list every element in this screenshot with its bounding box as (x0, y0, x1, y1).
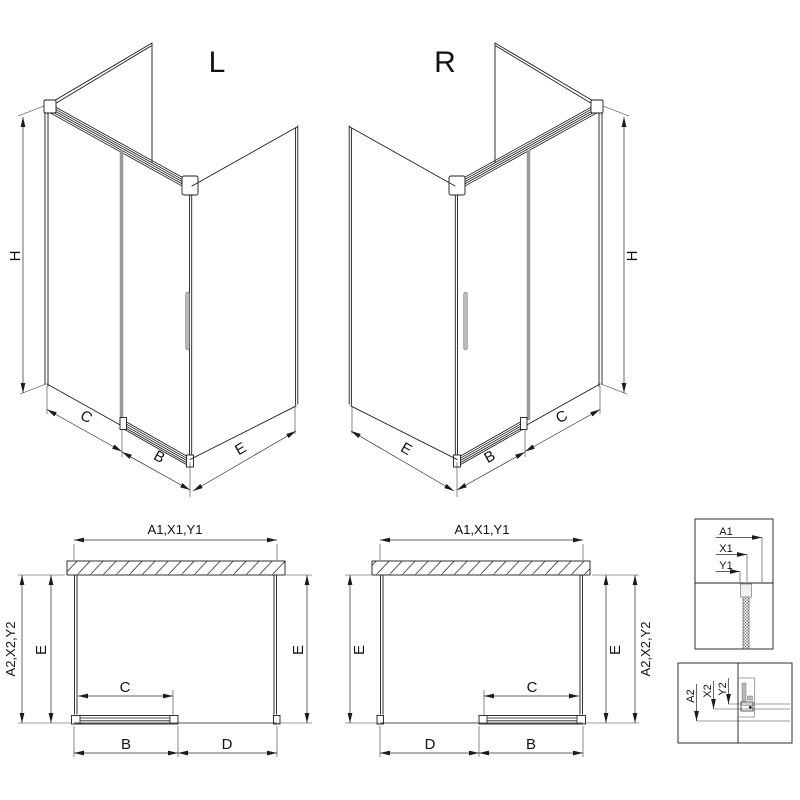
dim-label-c-planL: C (120, 679, 131, 696)
iso-r-door-handle (464, 292, 468, 350)
iso-r-right-side-panel (495, 43, 602, 386)
plan-view-left: A1,X1,Y1 A2,X2,Y2 E E C B D (3, 522, 312, 757)
dim-label-b-isoR: B (481, 447, 498, 467)
plan-r-wall (372, 561, 590, 575)
view-label-right: R (434, 46, 456, 79)
dim-label-b-planL: B (121, 736, 131, 753)
detail-top-leaders: A1 X1 Y1 (716, 526, 762, 582)
dim-label-e-left-planR: E (351, 645, 368, 655)
iso-r-sliding-door (455, 150, 528, 458)
wall-profile-bracket (741, 584, 752, 597)
dim-label-c-planR: C (527, 679, 538, 696)
detail-label-x2: X2 (702, 684, 714, 697)
detail-label-y1: Y1 (719, 560, 732, 572)
plan-r-glass-panels (377, 575, 583, 724)
dim-label-e-isoL: E (232, 439, 249, 459)
shower-enclosure-drawing: L (0, 0, 800, 800)
plan-l-wall (67, 561, 285, 575)
iso-r-dim-height: H (601, 106, 641, 394)
dim-label-e-left-planL: E (33, 645, 50, 655)
detail-label-a2: A2 (685, 689, 697, 702)
dim-label-a2x2y2-left: A2,X2,Y2 (3, 622, 18, 677)
iso-r-top-rail (449, 100, 603, 195)
plan-r-dim-c: C (484, 679, 579, 715)
dim-label-c-isoR: C (553, 407, 571, 427)
view-label-left: L (209, 46, 226, 79)
plan-l-dim-e-right: E (278, 575, 312, 723)
dim-label-d-planR: D (425, 736, 436, 753)
technical-drawing-page: L (0, 0, 800, 800)
detail-bottom-leaders: A2 X2 Y2 (685, 678, 729, 721)
detail-wall-profile: A1 X1 Y1 (695, 519, 773, 649)
dim-label-a1x1y1-right: A1,X1,Y1 (455, 522, 510, 537)
dim-label-h-right: H (624, 251, 641, 262)
iso-view-right: R (349, 43, 641, 497)
dim-label-d-planL: D (222, 736, 233, 753)
iso-l-sliding-door (122, 150, 192, 458)
detail-label-a1: A1 (719, 526, 732, 538)
iso-l-door-handle (186, 292, 190, 350)
dim-label-e-right-planL: E (290, 645, 307, 655)
detail-bottom-rail: A2 X2 Y2 (678, 663, 792, 743)
plan-l-glass-panels (74, 575, 280, 724)
iso-r-rail-endcap-left (449, 176, 465, 195)
dim-label-a1x1y1-left: A1,X1,Y1 (148, 522, 203, 537)
plan-r-dim-e-left: E (345, 575, 379, 723)
plan-l-dims-b-d: B D (74, 726, 277, 757)
dim-label-e-isoR: E (398, 439, 415, 459)
iso-l-right-side-panel (190, 126, 298, 460)
plan-view-right: A1,X1,Y1 E E A2,X2,Y2 C D B (345, 522, 653, 757)
dim-label-h-left: H (7, 251, 24, 262)
plan-r-dim-a1: A1,X1,Y1 (380, 522, 583, 560)
iso-l-dims-bottom: C B E (47, 386, 296, 497)
detail-top-frame (695, 519, 773, 649)
detail-label-y2: Y2 (717, 682, 729, 695)
iso-view-left: L (7, 43, 298, 497)
iso-l-left-side-panel (45, 43, 152, 386)
iso-r-rail-endcap-right (591, 100, 603, 113)
plan-r-dims-d-b: D B (380, 726, 583, 757)
iso-r-left-side-panel (349, 126, 457, 460)
plan-l-dim-a2-e: A2,X2,Y2 E (3, 575, 72, 723)
rail-profile-dot (749, 706, 752, 709)
plan-l-dim-c: C (78, 679, 173, 715)
dim-label-c-isoL: C (77, 407, 95, 427)
dim-label-a2x2y2-right: A2,X2,Y2 (638, 622, 653, 677)
dim-label-b-planR: B (526, 736, 536, 753)
dim-label-e-right-planR: E (607, 645, 624, 655)
dim-label-b-isoL: B (151, 447, 168, 467)
iso-l-rail-endcap-left (44, 100, 56, 113)
detail-label-x1: X1 (719, 543, 732, 555)
iso-r-dims-bottom: E B C (351, 386, 600, 497)
plan-l-dim-a1: A1,X1,Y1 (74, 522, 277, 560)
plan-r-dim-e-a2: E A2,X2,Y2 (585, 575, 653, 723)
iso-l-rail-endcap-right (182, 176, 198, 195)
iso-l-dim-height: H (7, 106, 46, 394)
rail-profile-section (741, 683, 753, 711)
